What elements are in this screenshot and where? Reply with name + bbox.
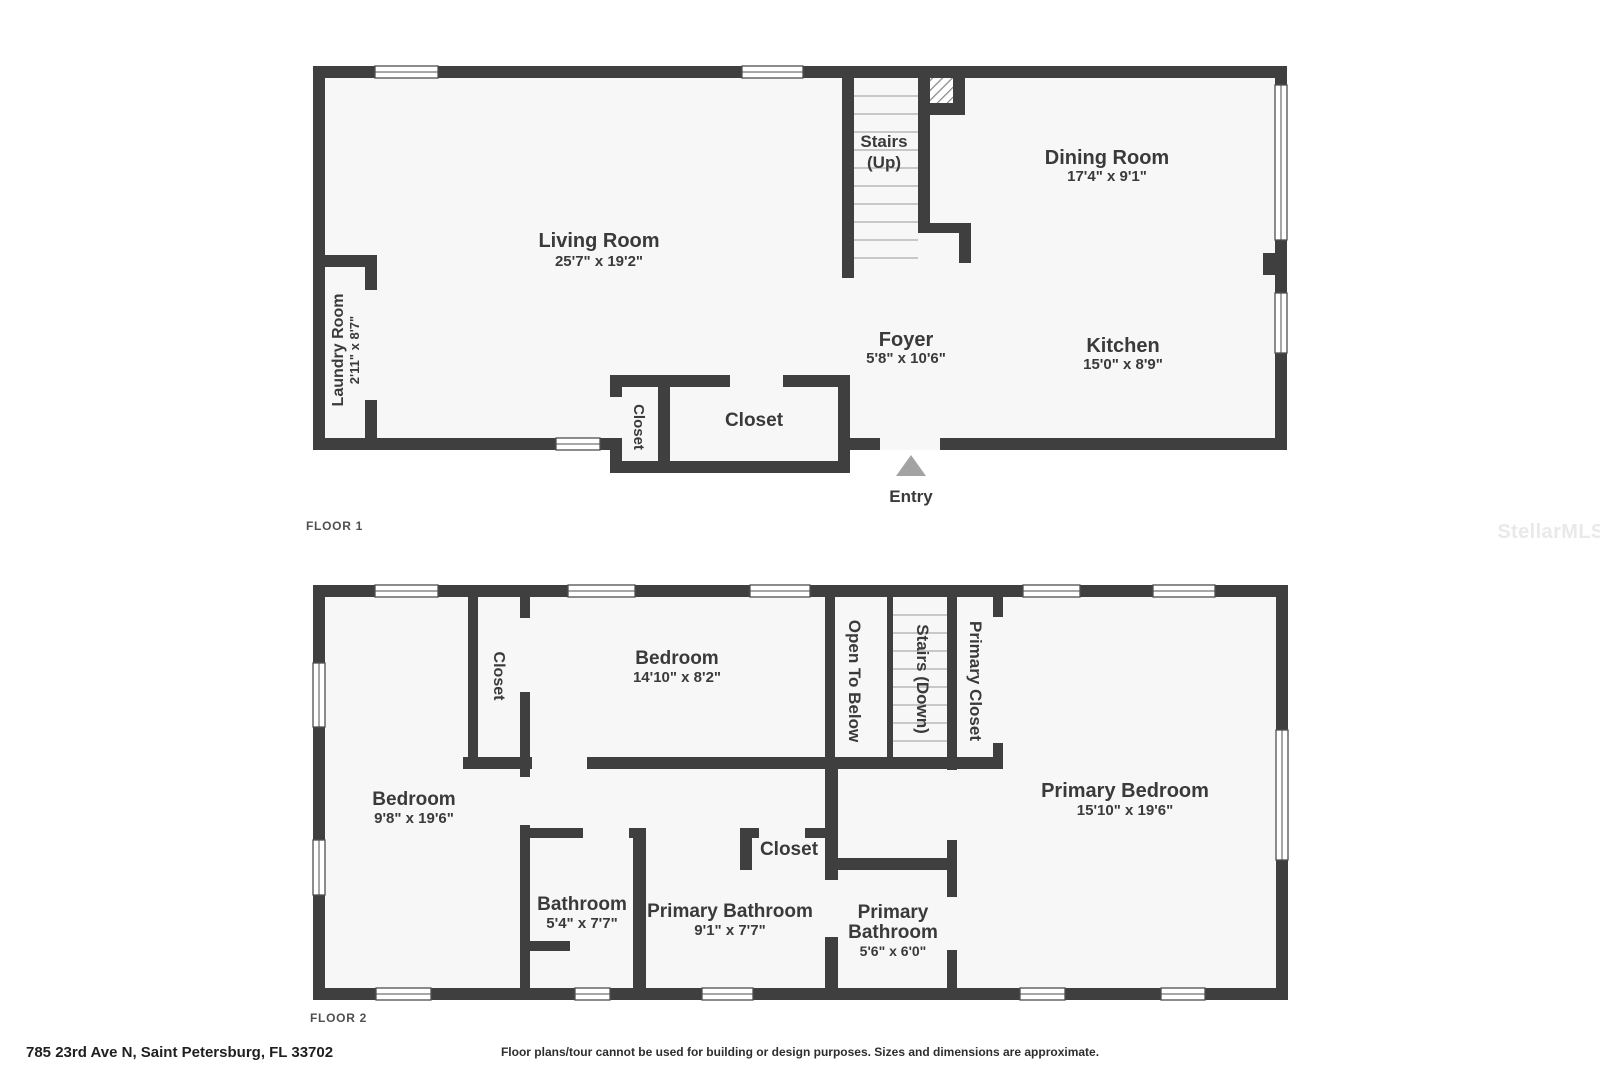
room-dims-laundry: 2'11" x 8'7" [347,316,362,384]
room-label-bathroom: Bathroom [537,894,627,915]
room-label-foyer: Foyer [879,329,934,351]
entry-label: Entry [889,487,933,506]
window [575,988,610,1000]
room-label-primary-bathroom: Primary Bathroom [647,901,813,922]
window [1153,585,1215,597]
room-dims-bedroom-mid: 14'10" x 8'2" [633,669,721,686]
room-label-bedroom-mid: Bedroom [635,648,718,669]
room-label-open-to-below: Open To Below [845,620,864,743]
window [313,663,325,727]
room-label-stairs-up-line1: Stairs [860,132,907,151]
room-dims-kitchen: 15'0" x 8'9" [1083,356,1163,373]
floor2-plan: Bedroom 9'8" x 19'6" Closet Bedroom 14'1… [310,585,1288,1025]
window [1020,988,1065,1000]
room-label-closet-hall: Closet [760,839,819,860]
room-dims-bedroom-left: 9'8" x 19'6" [374,810,454,827]
room-label-primary-bathroom2-line1: Primary [858,902,929,923]
room-label-closet-left: Closet [490,652,507,702]
room-dims-primary-bathroom2: 5'6" x 6'0" [860,943,927,959]
window [1161,988,1205,1000]
window [376,988,431,1000]
room-label-primary-bathroom2-line2: Bathroom [848,922,938,943]
window [375,66,438,78]
room-label-dining-room: Dining Room [1045,147,1169,169]
room-label-stairs-up-line2: (Up) [867,153,901,172]
property-address: 785 23rd Ave N, Saint Petersburg, FL 337… [26,1044,333,1061]
floor2-caption: FLOOR 2 [310,1011,367,1025]
room-label-living-room: Living Room [538,230,659,252]
window [702,988,753,1000]
window [1275,293,1287,353]
room-dims-living-room: 25'7" x 19'2" [555,253,643,270]
room-dims-primary-bathroom: 9'1" x 7'7" [694,922,765,939]
room-label-closet-large: Closet [725,410,784,431]
window [1276,730,1288,860]
room-dims-primary-bedroom: 15'10" x 19'6" [1077,802,1173,819]
window [742,66,803,78]
window [1023,585,1080,597]
room-label-closet-small: Closet [630,404,647,450]
floor1-plan: Living Room 25'7" x 19'2" Dining Room 17… [306,66,1287,533]
room-label-primary-bedroom: Primary Bedroom [1041,780,1209,802]
watermark: StellarMLS [1497,521,1600,543]
stairs-hatch-area [930,78,953,103]
window [556,438,600,450]
window [313,840,325,895]
window [1275,85,1287,240]
room-label-bedroom-left: Bedroom [372,789,455,810]
room-label-kitchen: Kitchen [1086,335,1159,357]
window [750,585,810,597]
window [375,585,438,597]
room-dims-bathroom: 5'4" x 7'7" [546,915,617,932]
room-label-primary-closet: Primary Closet [966,621,985,741]
room-label-stairs-down: Stairs (Down) [913,624,932,734]
floor-plan-image: Living Room 25'7" x 19'2" Dining Room 17… [0,0,1600,1066]
floor1-caption: FLOOR 1 [306,519,363,533]
room-dims-foyer: 5'8" x 10'6" [866,350,946,367]
room-label-laundry: Laundry Room [330,294,347,407]
window [568,585,635,597]
room-dims-dining-room: 17'4" x 9'1" [1067,168,1147,185]
disclaimer-text: Floor plans/tour cannot be used for buil… [501,1045,1099,1059]
entry-arrow-icon [896,455,926,476]
